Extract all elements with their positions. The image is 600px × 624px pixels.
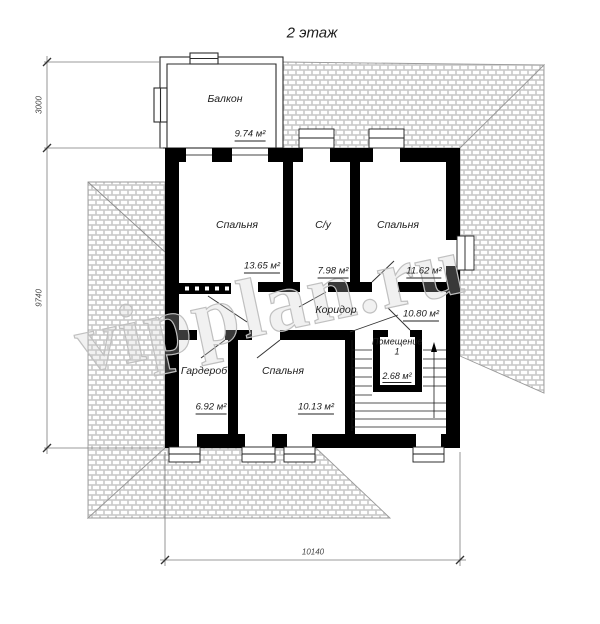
floor-plan-canvas: vipplan.ru 2 этаж Балкон 9.74 м² Спальня… [0,0,600,624]
floor-plan-drawing [0,0,600,624]
